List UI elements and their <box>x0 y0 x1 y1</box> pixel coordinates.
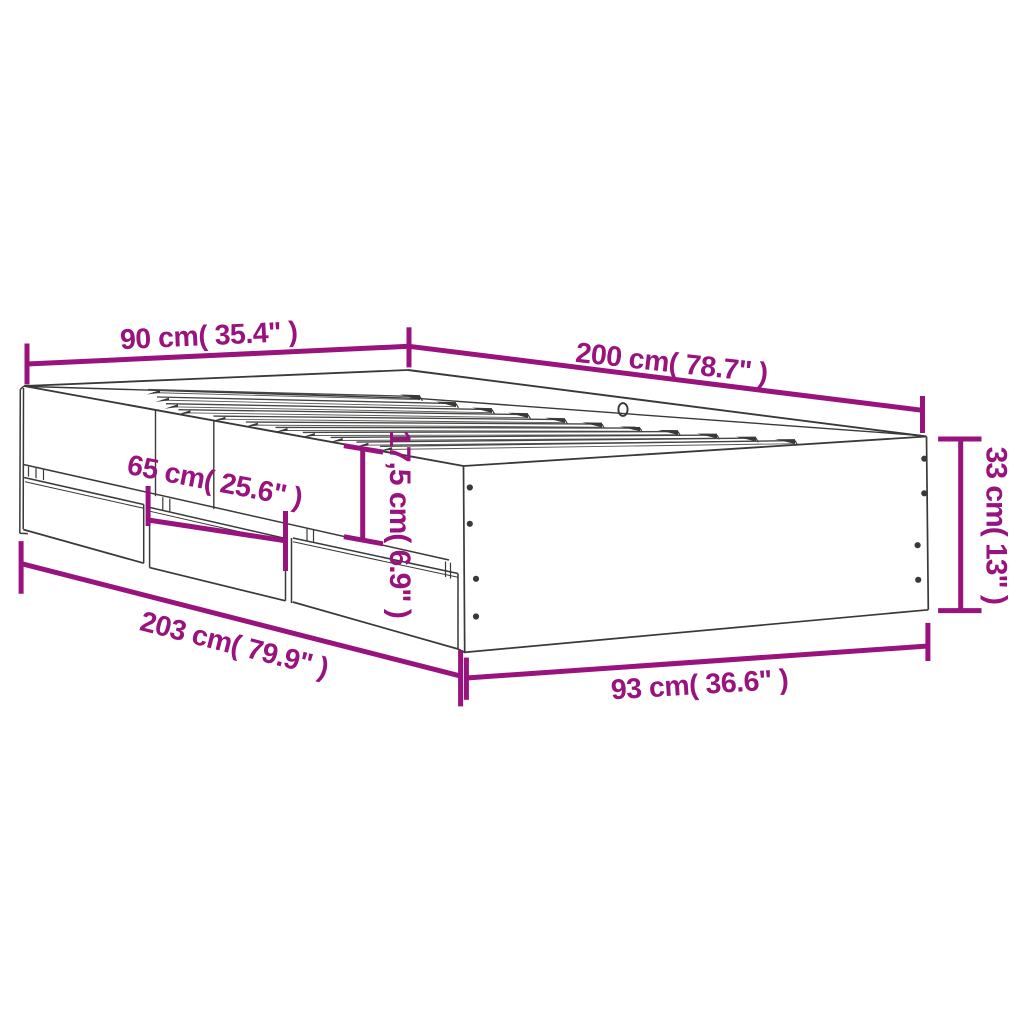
svg-text:17,5 cm( 6.9" ): 17,5 cm( 6.9" ) <box>383 430 416 618</box>
svg-text:33 cm( 13" ): 33 cm( 13" ) <box>980 447 1013 604</box>
